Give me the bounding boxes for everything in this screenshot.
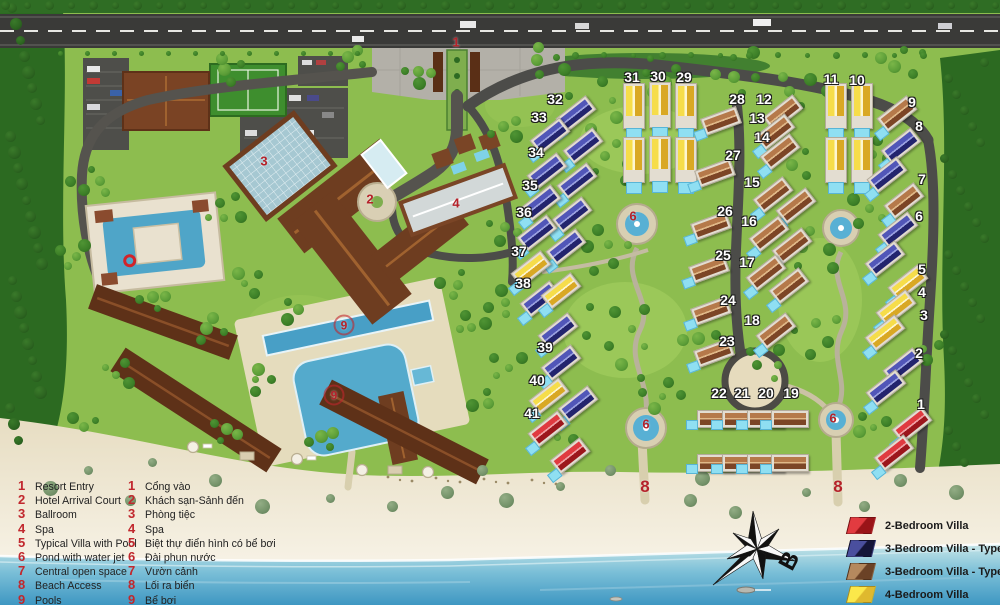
legend-item-label: Pond with water jet: [35, 552, 125, 564]
legend-item-label: Khách sạn-Sảnh đến: [145, 495, 244, 507]
legend-item: 4Spa: [18, 521, 137, 535]
legend-item-number: 9: [18, 592, 35, 605]
villa-type-swatch-icon: [846, 563, 876, 580]
legend-item-label: Bể bơi: [145, 595, 176, 605]
villa-type-legend-item: 2-Bedroom Villa: [848, 514, 1000, 537]
legend-item-label: Beach Access: [35, 580, 102, 592]
villa-type-label: 3-Bedroom Villa - Type B: [885, 566, 1000, 578]
legend-item-number: 2: [18, 492, 35, 507]
legend-item-label: Lối ra biển: [145, 580, 194, 592]
villa-type-swatch-icon: [846, 517, 876, 534]
legend-item-number: 5: [128, 535, 145, 550]
legend-item-number: 9: [128, 592, 145, 605]
legend-item: 7Central open space: [18, 563, 137, 577]
villa-type-label: 2-Bedroom Villa: [885, 520, 969, 532]
resort-master-plan: B 32333435363738394041313029282726252423…: [0, 0, 1000, 605]
legend-item-label: Spa: [145, 524, 164, 536]
legend-item-number: 1: [128, 478, 145, 493]
villa-type-legend-item: 4-Bedroom Villa: [848, 583, 1000, 605]
legend-item-number: 4: [18, 521, 35, 536]
legend-item-label: Spa: [35, 524, 54, 536]
legend-item-number: 4: [128, 521, 145, 536]
villa-type-swatch-icon: [846, 586, 876, 603]
legend-item: 5Typical Villa with Pool: [18, 535, 137, 549]
legend-item: 6Đài phun nước: [128, 549, 276, 563]
legend-item: 8Beach Access: [18, 577, 137, 591]
legend-item: 9Pools: [18, 592, 137, 605]
facilities-legend-en: 1Resort Entry2Hotel Arrival Court3Ballro…: [18, 478, 137, 605]
legend-item-label: Biệt thự điển hình có bể bơi: [145, 538, 276, 550]
legend-item-label: Cổng vào: [145, 481, 190, 493]
legend-item: 3Ballroom: [18, 506, 137, 520]
legend-item-number: 7: [18, 563, 35, 578]
legend-item: 2Hotel Arrival Court: [18, 492, 137, 506]
villa-types-legend: 2-Bedroom Villa3-Bedroom Villa - Type A3…: [848, 514, 1000, 605]
legend-item: 7Vườn cảnh: [128, 563, 276, 577]
legend-item-number: 6: [128, 549, 145, 564]
legend-item: 4Spa: [128, 521, 276, 535]
legend-item: 8Lối ra biển: [128, 577, 276, 591]
legend-item: 2Khách sạn-Sảnh đến: [128, 492, 276, 506]
facilities-legend-vi: 1Cổng vào2Khách sạn-Sảnh đến3Phòng tiệc4…: [128, 478, 276, 605]
legend-item-number: 1: [18, 478, 35, 493]
legend-item: 6Pond with water jet: [18, 549, 137, 563]
legend-item: 9Bể bơi: [128, 592, 276, 605]
legend-item-label: Ballroom: [35, 509, 77, 521]
legend-item: 5Biệt thự điển hình có bể bơi: [128, 535, 276, 549]
legend-item-label: Typical Villa with Pool: [35, 538, 137, 550]
legend-item-label: Đài phun nước: [145, 552, 216, 564]
legend-item-number: 6: [18, 549, 35, 564]
legend-item-label: Central open space: [35, 566, 127, 578]
legend-item: 1Resort Entry: [18, 478, 137, 492]
villa-type-label: 3-Bedroom Villa - Type A: [885, 543, 1000, 555]
legend-item-label: Vườn cảnh: [145, 566, 198, 578]
villa-type-legend-item: 3-Bedroom Villa - Type A: [848, 537, 1000, 560]
legend-item-number: 7: [128, 563, 145, 578]
legend-item-number: 8: [128, 577, 145, 592]
legend-item-label: Hotel Arrival Court: [35, 495, 121, 507]
villa-type-swatch-icon: [846, 540, 876, 557]
legend-item: 3Phòng tiệc: [128, 506, 276, 520]
legend-item: 1Cổng vào: [128, 478, 276, 492]
legend-item-number: 8: [18, 577, 35, 592]
legend-item-number: 2: [128, 492, 145, 507]
legend-item-label: Phòng tiệc: [145, 509, 195, 521]
legend-item-label: Resort Entry: [35, 481, 94, 493]
legend-item-label: Pools: [35, 595, 62, 605]
legend-item-number: 3: [128, 506, 145, 521]
legend-item-number: 3: [18, 506, 35, 521]
legend-item-number: 5: [18, 535, 35, 550]
villa-type-label: 4-Bedroom Villa: [885, 589, 969, 601]
villa-type-legend-item: 3-Bedroom Villa - Type B: [848, 560, 1000, 583]
